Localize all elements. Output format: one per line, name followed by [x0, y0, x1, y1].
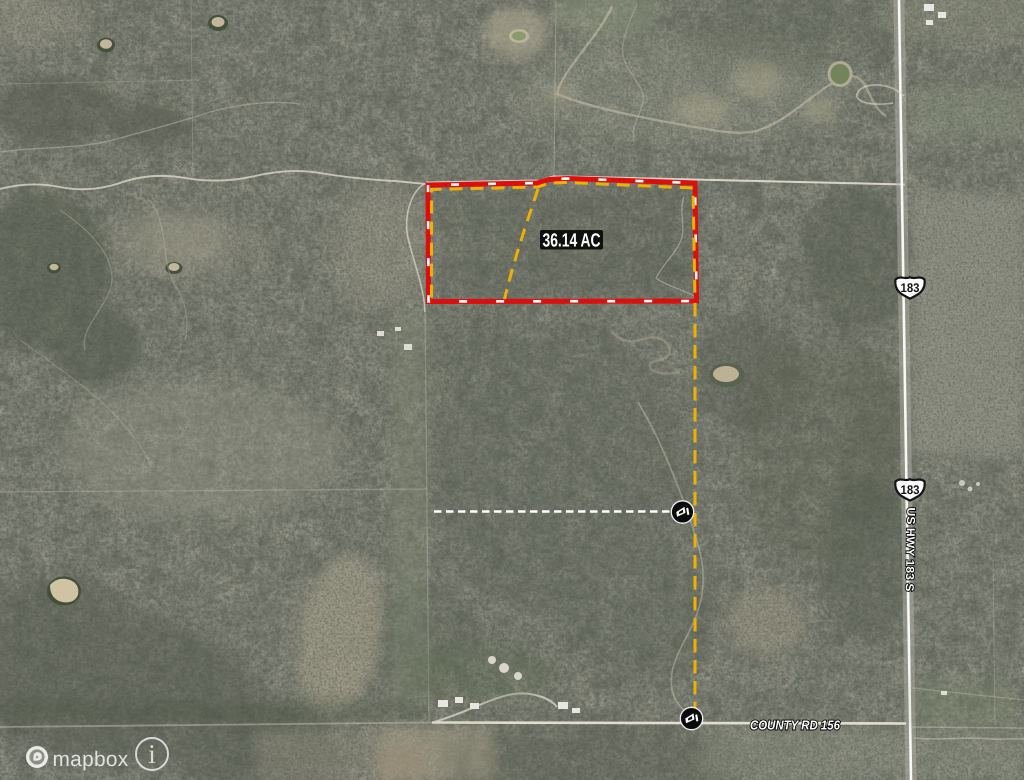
- svg-text:mapbox: mapbox: [53, 748, 129, 771]
- svg-text:i: i: [148, 739, 156, 769]
- svg-text:183: 183: [901, 281, 920, 295]
- svg-text:US HWY 183 S: US HWY 183 S: [903, 507, 916, 592]
- svg-text:COUNTY RD 156: COUNTY RD 156: [750, 718, 841, 733]
- svg-text:183: 183: [901, 483, 920, 497]
- svg-text:36.14 AC: 36.14 AC: [543, 231, 601, 252]
